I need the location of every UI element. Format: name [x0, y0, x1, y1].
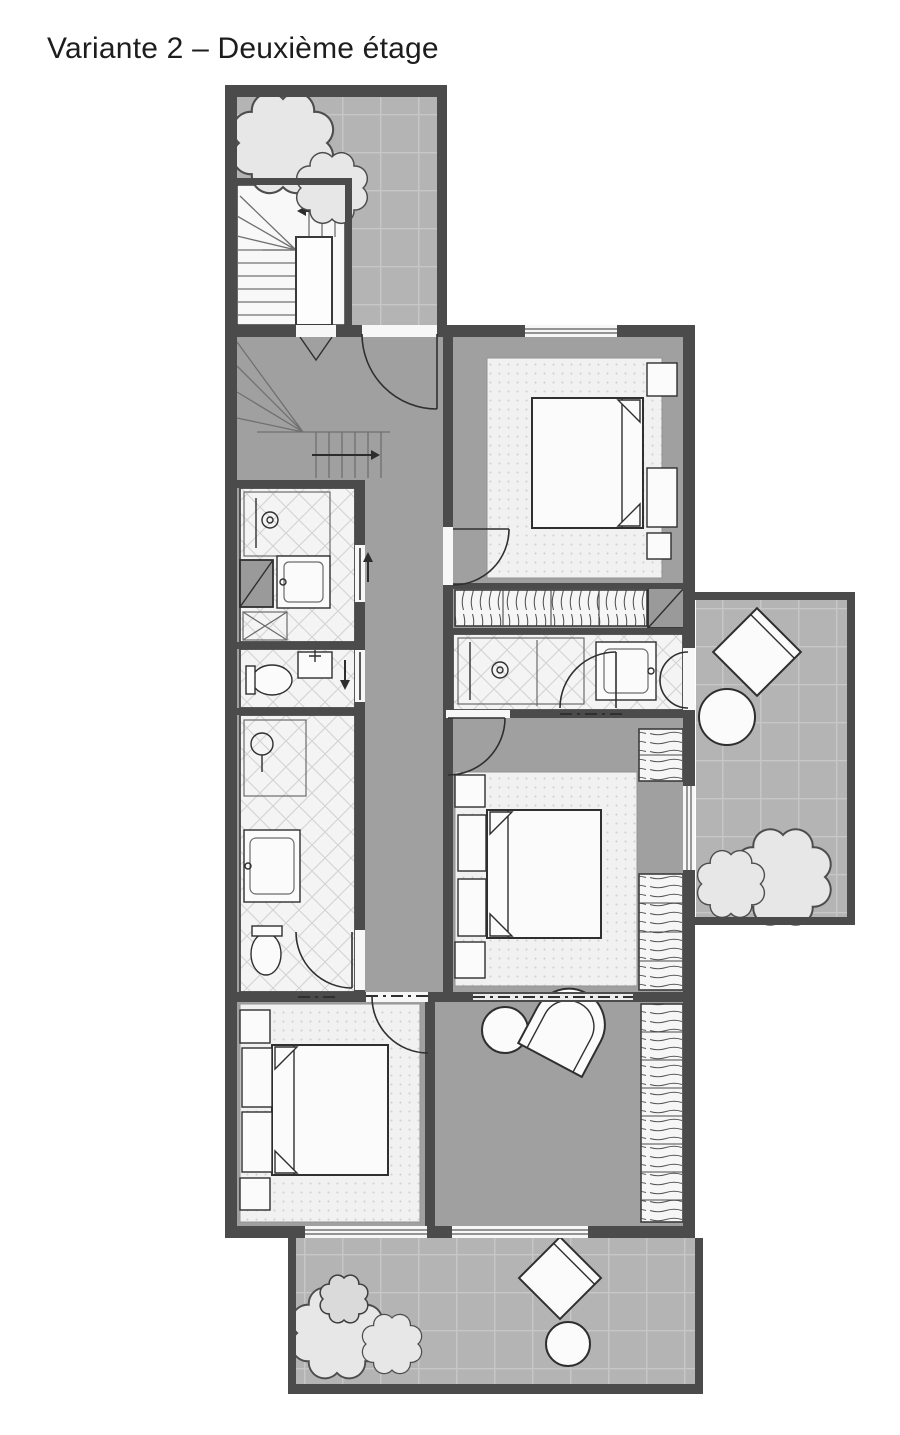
window — [525, 325, 617, 337]
door-opening — [355, 930, 365, 990]
bed-cushion — [242, 1048, 272, 1107]
side-table — [647, 533, 671, 559]
window-glass — [452, 1226, 588, 1238]
duct-shaft — [296, 237, 332, 325]
terrace-table — [546, 1322, 590, 1366]
toilet-bowl — [251, 933, 281, 975]
wall-terrace-north-east — [437, 85, 447, 337]
wall-terrace-east-top — [688, 592, 855, 600]
window — [452, 1226, 588, 1238]
door-opening — [296, 325, 336, 337]
terrace-south — [292, 1237, 695, 1384]
wall-terrace-south-right — [695, 1238, 703, 1394]
floor-plan-drawing — [0, 0, 900, 1435]
wall-stair-separator — [232, 178, 345, 185]
wall-bed3-sitting — [425, 1000, 435, 1226]
wall-wc-bath2 — [225, 708, 365, 715]
nightstand — [455, 942, 485, 978]
door-opening — [683, 648, 695, 710]
wc-room — [240, 649, 355, 708]
nightstand — [455, 775, 485, 807]
bed-cushion — [458, 815, 486, 871]
window — [305, 1226, 427, 1238]
wardrobe — [641, 1004, 683, 1222]
window-glass — [683, 786, 695, 870]
wall-bath1-wc — [225, 642, 365, 649]
nightstand — [647, 363, 677, 396]
toilet-bowl — [252, 665, 292, 695]
dressing-wardrobe — [455, 588, 684, 628]
door-opening — [362, 325, 437, 337]
wall-wardrobe-ensuite — [453, 628, 695, 634]
window-glass — [305, 1226, 427, 1238]
wall-bed1-wardrobe — [453, 583, 695, 589]
wall-terrace-south-bottom — [288, 1384, 703, 1394]
wall-west — [225, 85, 237, 1238]
wall-terrace-south-left — [288, 1238, 296, 1394]
bed — [487, 810, 601, 938]
bed — [532, 398, 643, 528]
wall-stair-bath1 — [225, 480, 365, 488]
wall-terrace-east-bottom — [688, 917, 855, 925]
nightstand — [240, 1010, 270, 1043]
wall-terrace-east-right — [847, 592, 855, 925]
bed-cushion — [242, 1112, 272, 1172]
bathroom-2 — [240, 715, 355, 992]
bed — [272, 1045, 388, 1175]
toilet-tank — [252, 926, 282, 936]
terrace-east — [696, 600, 847, 925]
bed-cushion — [458, 879, 486, 936]
bathroom-1 — [240, 488, 355, 642]
wall-corridor-bedrooms — [443, 332, 453, 992]
door-opening — [443, 527, 453, 585]
ensuite-bathroom — [453, 634, 683, 710]
nightstand — [240, 1178, 270, 1210]
wall-stair-east — [345, 178, 352, 325]
nightstand — [647, 468, 677, 527]
wall-terrace-north-top — [225, 85, 447, 97]
window-glass — [525, 325, 617, 337]
terrace-north — [233, 93, 437, 325]
toilet-tank — [246, 666, 255, 694]
window — [683, 786, 695, 870]
door-opening — [446, 710, 510, 718]
terrace-table — [699, 689, 755, 745]
round-table — [482, 1007, 528, 1053]
vanity — [244, 830, 300, 902]
floor-plan-page: Variante 2 – Deuxième étage — [0, 0, 900, 1435]
